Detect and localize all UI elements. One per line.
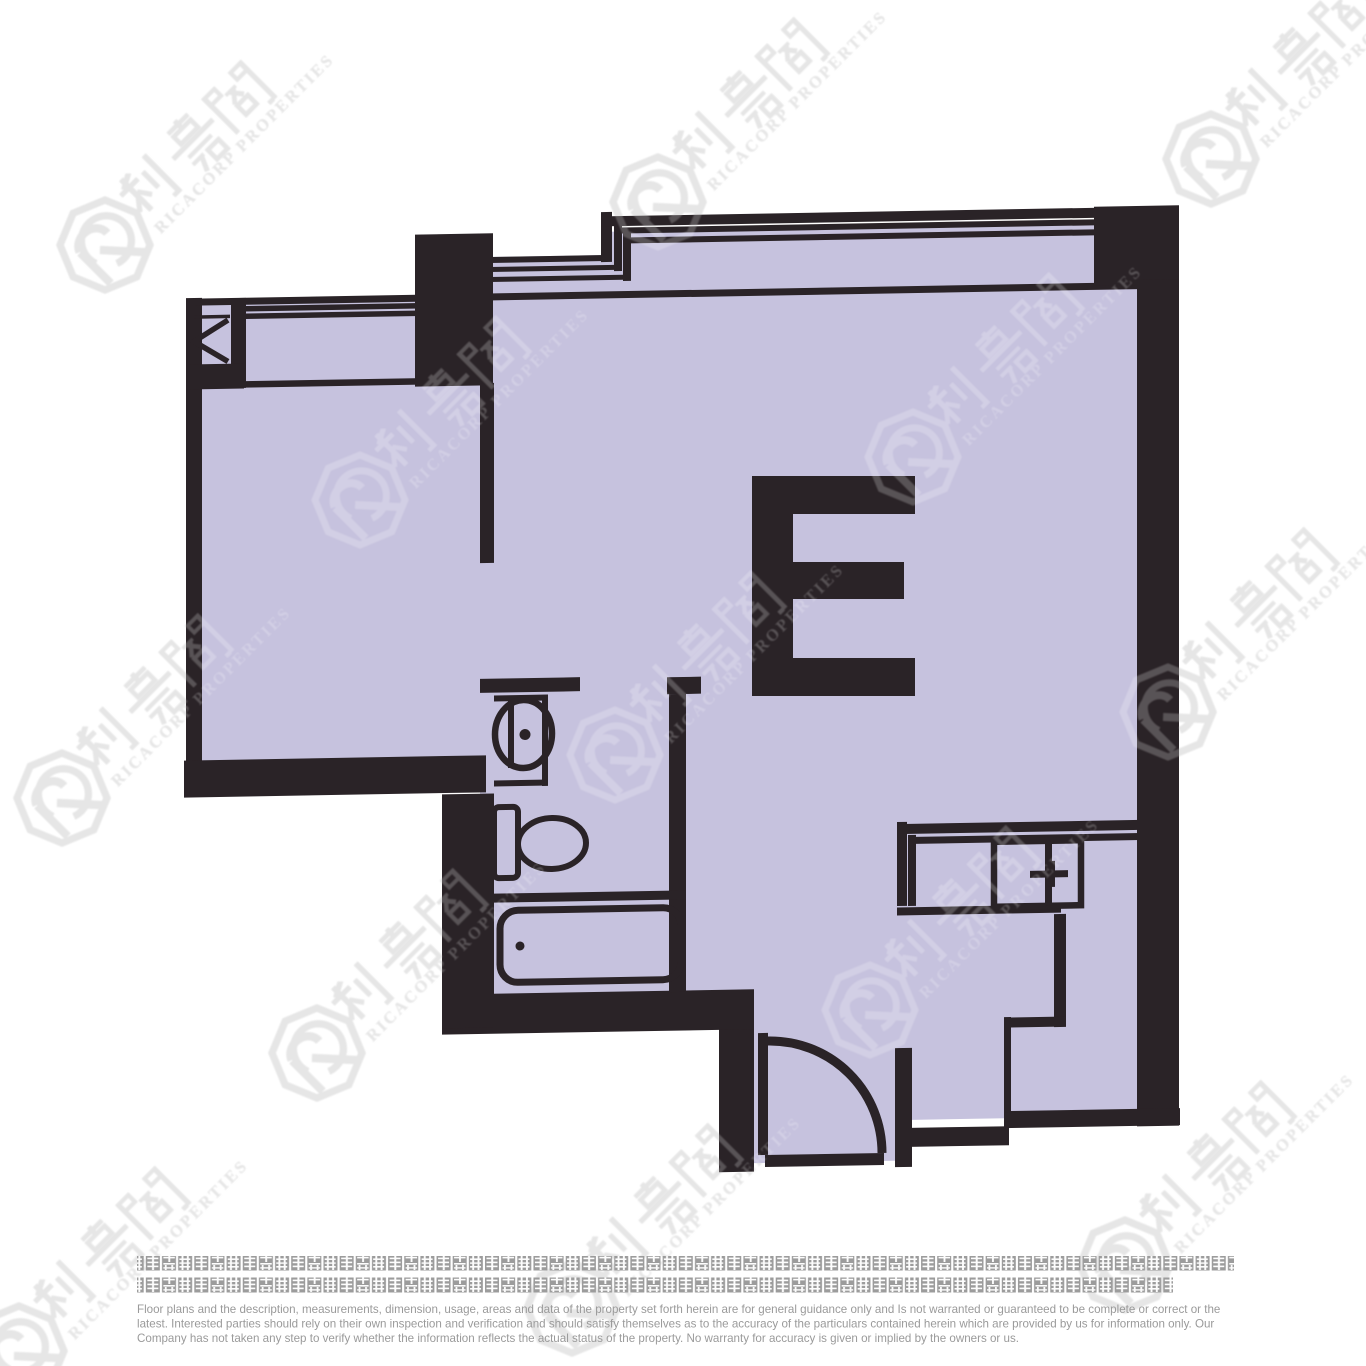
svg-text:Company has not taken any step: Company has not taken any step to verify… [137,1332,1019,1345]
svg-text:Floor plans and the descriptio: Floor plans and the description, measure… [137,1303,1220,1316]
svg-text:latest. Interested parties sho: latest. Interested parties should rely o… [137,1318,1214,1331]
